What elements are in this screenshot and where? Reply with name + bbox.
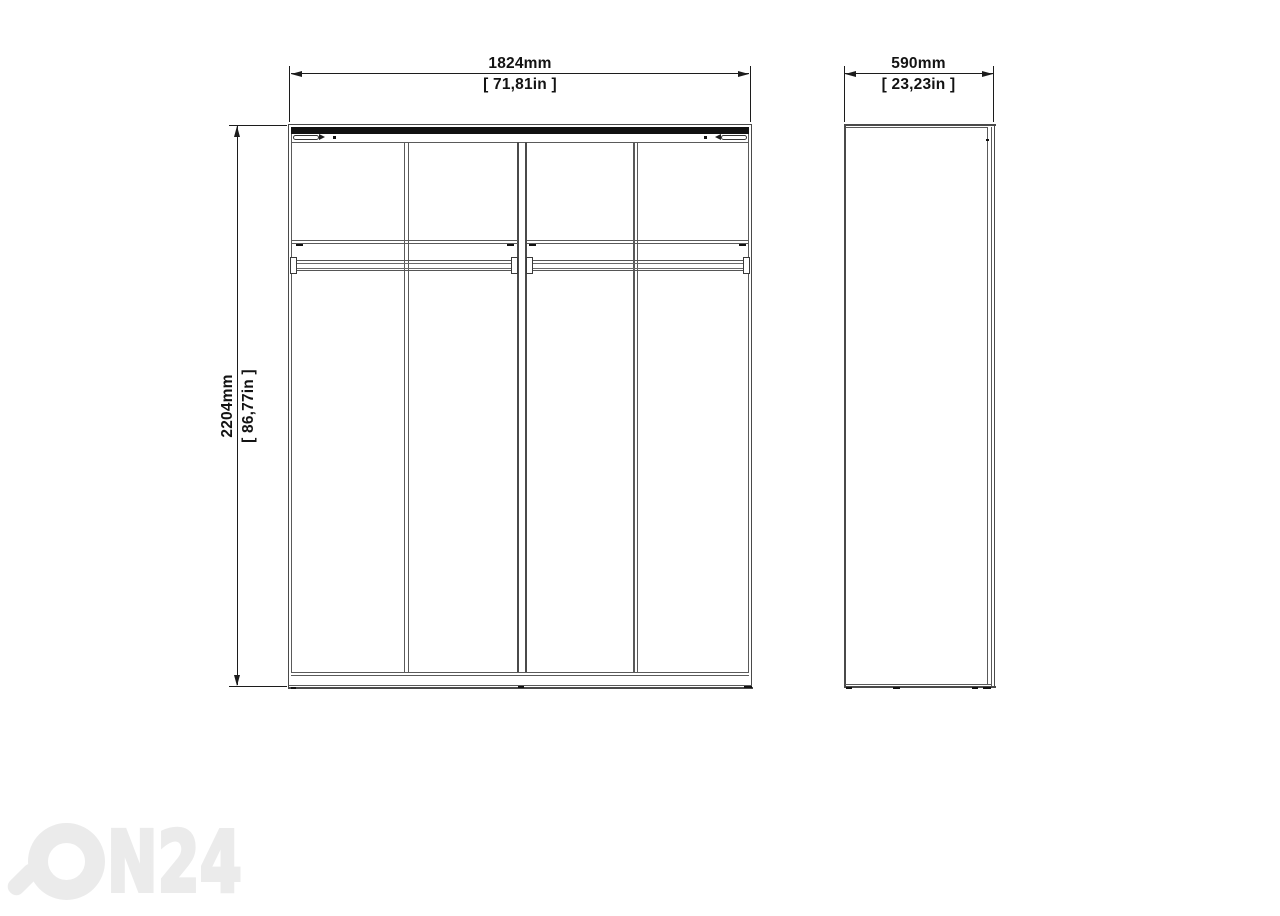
right-wall-outer xyxy=(751,124,752,688)
extension-line xyxy=(229,686,287,687)
front-height-in-label: [ 86,77in ] xyxy=(240,369,258,443)
side-dot xyxy=(986,139,989,142)
track-bar xyxy=(291,127,749,134)
foot-mark xyxy=(893,687,900,689)
foot-mark xyxy=(846,687,852,689)
track-dot-left xyxy=(333,136,336,139)
foot-mark xyxy=(291,687,296,689)
shelf-pin xyxy=(739,244,746,246)
divider-3-b xyxy=(637,142,638,673)
side-top-inner xyxy=(845,127,988,128)
dimension-arrow-down-icon xyxy=(234,675,240,686)
front-height-mm-label: 2204mm xyxy=(219,374,237,437)
side-bottom-line xyxy=(845,684,992,685)
left-wall-outer xyxy=(288,124,289,688)
dimension-arrow-left-icon xyxy=(291,71,302,77)
rail-bracket xyxy=(743,257,750,274)
magnifier-o-icon xyxy=(28,823,105,900)
side-front-panel-line xyxy=(987,128,988,684)
bottom-board-bottom xyxy=(291,675,749,676)
foot-mark xyxy=(518,686,524,688)
foot-mark xyxy=(983,687,991,689)
dimension-arrow-left-icon xyxy=(845,71,856,77)
rail-line xyxy=(294,263,517,264)
side-depth-in-label: [ 23,23in ] xyxy=(882,76,956,94)
side-left-wall xyxy=(844,124,846,687)
shelf-left-bottom xyxy=(292,243,518,244)
hanging-rail-left xyxy=(293,260,518,272)
shelf-right-bottom xyxy=(527,243,748,244)
extension-line xyxy=(750,66,751,122)
wardrobe-dimension-diagram: N24 xyxy=(0,0,1280,916)
dimension-arrow-right-icon xyxy=(738,71,749,77)
dimension-arrow-up-icon xyxy=(234,126,240,137)
shelf-pin xyxy=(296,244,303,246)
dimension-line xyxy=(291,73,749,74)
track-dot-right xyxy=(704,136,707,139)
grip-arrow-right-icon xyxy=(319,134,325,140)
side-right-wall-outer xyxy=(994,124,995,688)
dimension-line xyxy=(845,73,993,74)
front-width-mm-label: 1824mm xyxy=(488,55,551,73)
shelf-pin xyxy=(507,244,514,246)
front-width-in-label: [ 71,81in ] xyxy=(483,76,557,94)
top-edge-line xyxy=(288,124,752,125)
rail-line xyxy=(528,263,748,264)
side-depth-mm-label: 590mm xyxy=(891,55,945,73)
side-top-edge xyxy=(844,124,996,125)
right-wall-inner xyxy=(748,134,749,673)
rail-line xyxy=(294,268,517,269)
rail-bracket xyxy=(526,257,533,274)
divider-3-a xyxy=(633,142,634,673)
door-grip-right xyxy=(721,135,747,140)
shelf-right-top xyxy=(527,240,748,241)
watermark-text: N24 xyxy=(107,820,242,904)
track-bottom-line xyxy=(291,142,749,143)
shelf-pin xyxy=(529,244,536,246)
divider-1-a xyxy=(404,142,405,673)
shelf-left-top xyxy=(292,240,518,241)
dimension-arrow-right-icon xyxy=(982,71,993,77)
door-grip-left xyxy=(293,135,319,140)
rail-bracket xyxy=(290,257,297,274)
divider-1-b xyxy=(408,142,409,673)
foot-mark xyxy=(972,687,978,689)
side-right-wall-inner xyxy=(991,127,992,686)
bottom-board-top xyxy=(291,672,749,673)
divider-center-a xyxy=(517,142,519,673)
rail-bracket xyxy=(511,257,518,274)
left-wall-inner xyxy=(291,134,292,673)
rail-line xyxy=(528,268,748,269)
foot-mark xyxy=(744,686,752,688)
hanging-rail-right xyxy=(527,260,749,272)
divider-center-b xyxy=(525,142,527,673)
